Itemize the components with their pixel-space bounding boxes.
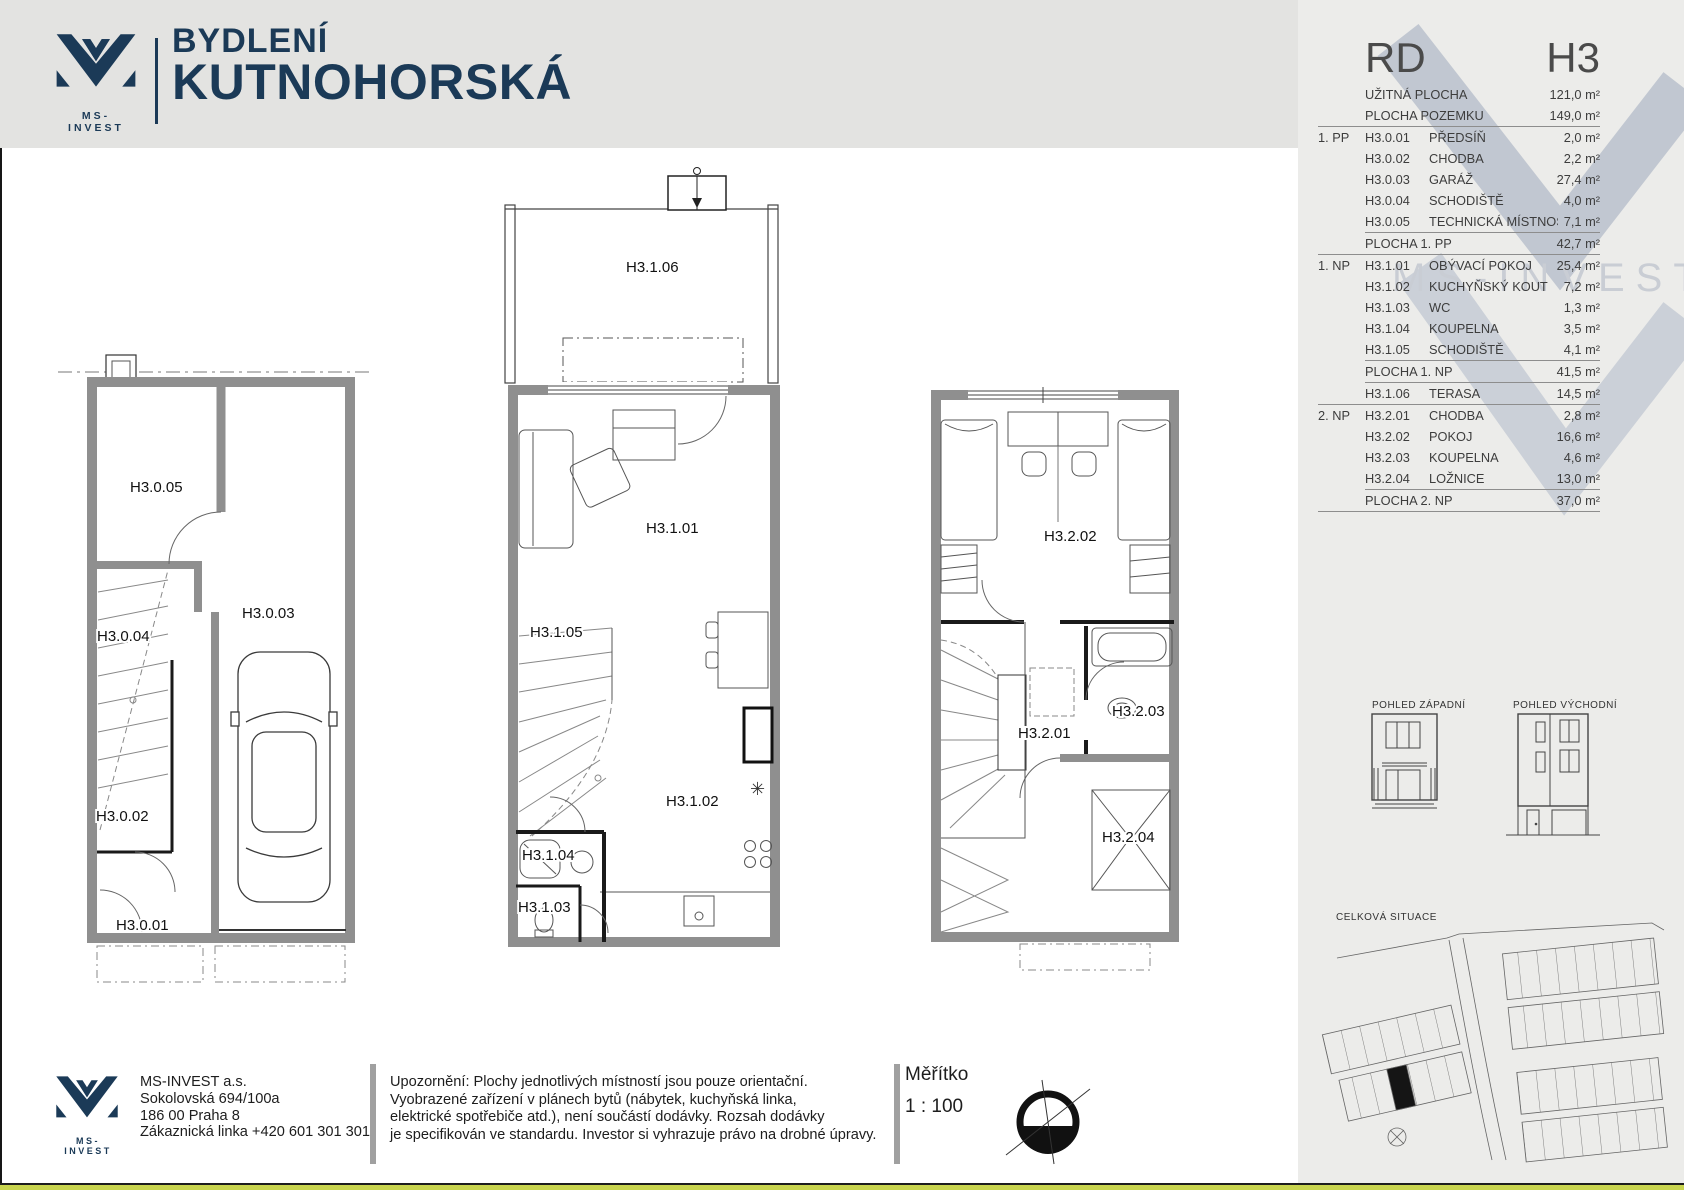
room-name: LOŽNICE: [1429, 471, 1551, 486]
east-elevation-label: POHLED VÝCHODNÍ: [1513, 698, 1617, 711]
room-name: UŽITNÁ PLOCHA: [1365, 87, 1543, 102]
room-area: 4,0 m²: [1564, 193, 1600, 208]
room-code: H3.1.01: [1365, 258, 1429, 273]
room-area: 3,5 m²: [1564, 321, 1600, 336]
page: MS-INVEST BYDLENÍ KUTNOHORSKÁ MS-INVEST …: [0, 0, 1684, 1190]
room-label: H3.1.06: [626, 259, 679, 276]
area-table-row: H3.1.03WC1,3 m²: [1318, 297, 1600, 318]
room-label: H3.0.03: [242, 605, 295, 622]
room-area: 16,6 m²: [1557, 429, 1600, 444]
room-code: H3.1.04: [1365, 321, 1429, 336]
north-compass-icon: [1000, 1075, 1100, 1175]
area-table-row: 1. PPH3.0.01PŘEDSÍŇ2,0 m²: [1318, 127, 1600, 148]
room-code: H3.0.01: [1365, 130, 1429, 145]
unit-type-label: RD: [1365, 34, 1426, 82]
room-name: KOUPELNA: [1429, 321, 1558, 336]
ms-invest-logo-mark: [55, 33, 137, 101]
room-area: 25,4 m²: [1557, 258, 1600, 273]
room-area: 13,0 m²: [1557, 471, 1600, 486]
room-label: H3.1.05: [530, 624, 583, 641]
area-table-row: H3.2.02POKOJ16,6 m²: [1318, 426, 1600, 447]
room-area: 14,5 m²: [1557, 386, 1600, 401]
area-table-row: H3.1.05SCHODIŠTĚ4,1 m²: [1318, 339, 1600, 360]
room-code: H3.1.06: [1365, 386, 1429, 401]
room-name: KOUPELNA: [1429, 450, 1558, 465]
room-area: 7,1 m²: [1564, 214, 1600, 229]
room-name: CHODBA: [1429, 151, 1558, 166]
area-table-row: H3.1.04KOUPELNA3,5 m²: [1318, 318, 1600, 339]
room-name: PLOCHA 1. PP: [1365, 236, 1551, 251]
room-label: H3.1.04: [522, 847, 575, 864]
brand-divider: [155, 38, 158, 124]
area-table-rows: UŽITNÁ PLOCHA121,0 m²PLOCHA POZEMKU149,0…: [1318, 84, 1600, 512]
area-table-row: UŽITNÁ PLOCHA121,0 m²: [1318, 84, 1600, 105]
scale-label: Měřítko: [905, 1064, 968, 1086]
floor-label: 2. NP: [1318, 408, 1365, 423]
west-elevation-label: POHLED ZÁPADNÍ: [1372, 698, 1466, 711]
area-table-row: 2. NPH3.2.01CHODBA2,8 m²: [1318, 405, 1600, 426]
project-title: BYDLENÍ KUTNOHORSKÁ: [172, 24, 572, 106]
project-title-line1: BYDLENÍ: [172, 24, 572, 58]
table-separator: [1318, 511, 1600, 512]
room-label: H3.0.05: [130, 479, 183, 496]
area-table-row: PLOCHA 2. NP37,0 m²: [1318, 490, 1600, 511]
room-label: H3.1.02: [666, 793, 719, 810]
site-block-upper: [1502, 938, 1663, 1049]
room-code: H3.2.02: [1365, 429, 1429, 444]
room-name: CHODBA: [1429, 408, 1558, 423]
room-area: 27,4 m²: [1557, 172, 1600, 187]
area-table-row: H3.2.03KOUPELNA4,6 m²: [1318, 447, 1600, 468]
room-name: SCHODIŠTĚ: [1429, 342, 1558, 357]
room-code: H3.0.02: [1365, 151, 1429, 166]
company-address2: 186 00 Praha 8: [140, 1108, 370, 1125]
floor-label: 1. NP: [1318, 258, 1365, 273]
room-name: PŘEDSÍŇ: [1429, 130, 1558, 145]
room-name: WC: [1429, 300, 1558, 315]
disclaimer-text: Upozornění: Plochy jednotlivých místnost…: [390, 1074, 890, 1144]
room-area: 149,0 m²: [1549, 108, 1600, 123]
room-name: PLOCHA 2. NP: [1365, 493, 1551, 508]
room-area: 2,2 m²: [1564, 151, 1600, 166]
room-name: TECHNICKÁ MÍSTNOST: [1429, 214, 1558, 229]
site-plan: CELKOVÁ SITUACE: [1300, 905, 1684, 1170]
area-table-row: PLOCHA 1. PP42,7 m²: [1318, 233, 1600, 254]
footer-logo: MS-INVEST: [55, 1076, 121, 1156]
room-label: H3.0.02: [96, 808, 149, 825]
room-name: SCHODIŠTĚ: [1429, 193, 1558, 208]
room-area: 2,0 m²: [1564, 130, 1600, 145]
room-label: H3.2.02: [1044, 528, 1097, 545]
room-area: 42,7 m²: [1557, 236, 1600, 251]
room-code: H3.0.04: [1365, 193, 1429, 208]
room-area: 1,3 m²: [1564, 300, 1600, 315]
scale-divider-bar: [894, 1064, 900, 1164]
room-area: 37,0 m²: [1557, 493, 1600, 508]
room-code: H3.2.04: [1365, 471, 1429, 486]
floor-plan-1np: ✳: [455, 150, 795, 965]
area-table: UŽITNÁ PLOCHA121,0 m²PLOCHA POZEMKU149,0…: [1318, 84, 1600, 512]
floor-label: 1. PP: [1318, 130, 1365, 145]
room-label: H3.2.03: [1112, 703, 1165, 720]
footer-divider-bar: [370, 1064, 376, 1164]
project-title-line2: KUTNOHORSKÁ: [172, 58, 572, 106]
room-code: H3.0.03: [1365, 172, 1429, 187]
floor-plan-1pp: H3.0.05 H3.0.03 H3.0.04 H3.0.02 H3.0.01: [55, 340, 375, 1000]
company-info: MS-INVEST a.s. Sokolovská 694/100a 186 0…: [140, 1074, 370, 1141]
room-area: 4,1 m²: [1564, 342, 1600, 357]
room-code: H3.2.01: [1365, 408, 1429, 423]
company-phone: Zákaznická linka +420 601 301 301: [140, 1124, 370, 1141]
ms-invest-logo: MS-INVEST: [55, 33, 137, 134]
area-table-row: PLOCHA 1. NP41,5 m²: [1318, 361, 1600, 382]
unit-heading: RD H3: [1318, 34, 1600, 82]
floor-plan-2np: H3.2.02 H3.2.01 H3.2.03 H3.2.04: [855, 350, 1190, 975]
room-name: KUCHYŇSKÝ KOUT: [1429, 279, 1558, 294]
room-label: H3.2.04: [1102, 829, 1155, 846]
room-name: PLOCHA POZEMKU: [1365, 108, 1543, 123]
unit-number-label: H3: [1546, 34, 1600, 82]
room-name: OBÝVACÍ POKOJ: [1429, 258, 1551, 273]
room-label: H3.0.04: [97, 628, 150, 645]
room-code: H3.1.05: [1365, 342, 1429, 357]
area-table-row: H3.0.02CHODBA2,2 m²: [1318, 148, 1600, 169]
scale-value: 1 : 100: [905, 1096, 968, 1118]
area-table-row: PLOCHA POZEMKU149,0 m²: [1318, 105, 1600, 126]
room-code: H3.1.03: [1365, 300, 1429, 315]
room-label: H3.0.01: [116, 917, 169, 934]
area-table-row: H3.0.04SCHODIŠTĚ4,0 m²: [1318, 190, 1600, 211]
footer-logo-mark: [55, 1076, 119, 1128]
west-elevation-drawing: [1372, 714, 1437, 808]
elevations: POHLED ZÁPADNÍ POHLED VÝCHODNÍ: [1340, 690, 1684, 850]
car-graphic: [231, 652, 337, 902]
company-name: MS-INVEST a.s.: [140, 1074, 370, 1091]
site-block-left: [1322, 1005, 1471, 1122]
area-table-row: H3.0.03GARÁŽ27,4 m²: [1318, 169, 1600, 190]
room-area: 4,6 m²: [1564, 450, 1600, 465]
room-code: H3.1.02: [1365, 279, 1429, 294]
accent-green-bar: [0, 1185, 1684, 1190]
room-name: PLOCHA 1. NP: [1365, 364, 1551, 379]
room-name: POKOJ: [1429, 429, 1551, 444]
company-address1: Sokolovská 694/100a: [140, 1091, 370, 1108]
room-label: H3.2.01: [1018, 725, 1071, 742]
terrace-gate: [668, 168, 726, 211]
room-label: H3.1.01: [646, 520, 699, 537]
room-label: H3.1.03: [518, 899, 571, 916]
area-table-row: 1. NPH3.1.01OBÝVACÍ POKOJ25,4 m²: [1318, 255, 1600, 276]
room-area: 2,8 m²: [1564, 408, 1600, 423]
room-name: TERASA: [1429, 386, 1551, 401]
logo-caption: MS-INVEST: [55, 110, 137, 134]
room-area: 41,5 m²: [1557, 364, 1600, 379]
room-code: H3.2.03: [1365, 450, 1429, 465]
area-table-row: H3.1.06TERASA14,5 m²: [1318, 383, 1600, 404]
east-elevation-drawing: [1506, 714, 1600, 835]
room-code: H3.0.05: [1365, 214, 1429, 229]
area-table-row: H3.1.02KUCHYŇSKÝ KOUT7,2 m²: [1318, 276, 1600, 297]
scale-block: Měřítko 1 : 100: [905, 1064, 968, 1118]
area-table-row: H3.0.05TECHNICKÁ MÍSTNOST7,1 m²: [1318, 211, 1600, 232]
room-name: GARÁŽ: [1429, 172, 1551, 187]
area-table-row: H3.2.04LOŽNICE13,0 m²: [1318, 468, 1600, 489]
site-block-lower-right: [1517, 1058, 1668, 1162]
svg-text:✳: ✳: [750, 779, 765, 799]
room-area: 7,2 m²: [1564, 279, 1600, 294]
site-plan-label: CELKOVÁ SITUACE: [1336, 910, 1437, 923]
footer-logo-caption: MS-INVEST: [55, 1136, 121, 1156]
room-area: 121,0 m²: [1549, 87, 1600, 102]
